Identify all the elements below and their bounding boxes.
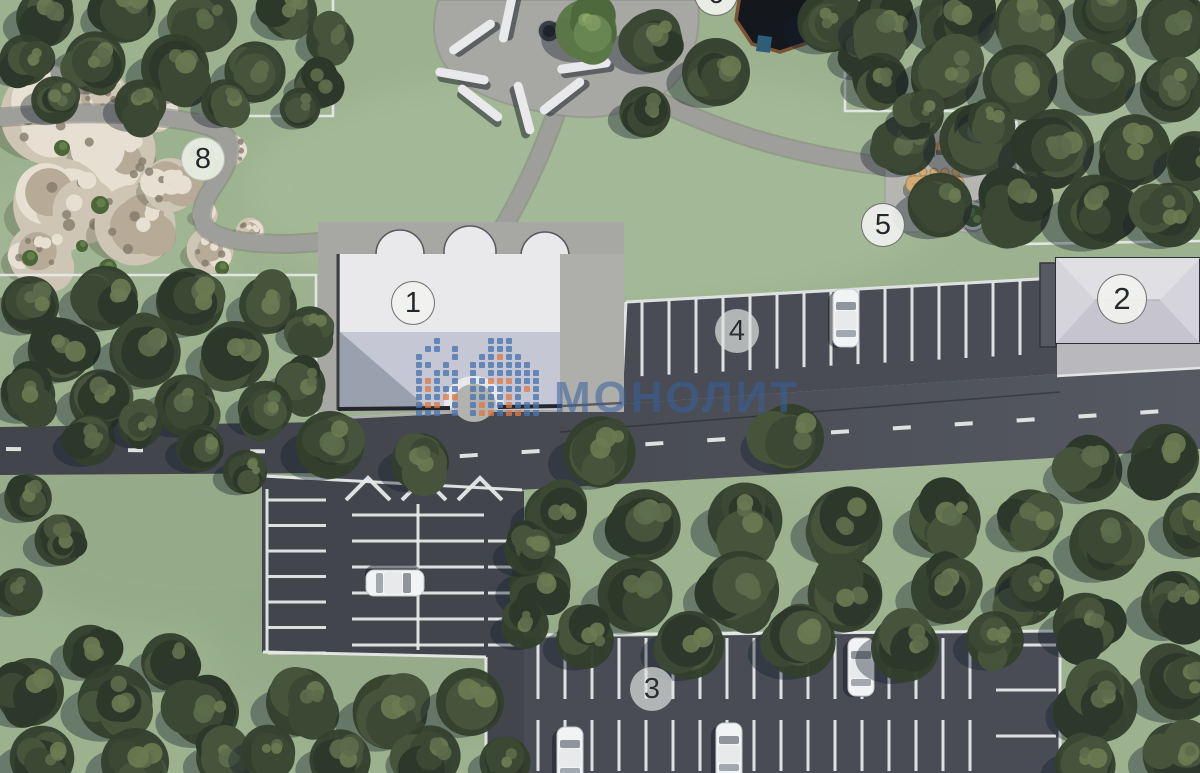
area-marker-5: 5 [861, 203, 905, 247]
area-marker-1-label: 1 [405, 287, 421, 320]
area-marker-5-label: 5 [875, 209, 891, 242]
car [711, 723, 742, 773]
site-plan-render: 6 8 1 2 4 5 3 МОНОЛИТ [0, 0, 1200, 773]
area-marker-3-label: 3 [644, 673, 660, 706]
car [828, 289, 859, 348]
area-marker-4-label: 4 [729, 315, 745, 348]
building-1 [318, 222, 624, 422]
car [552, 727, 583, 773]
area-marker-6-label: 6 [708, 0, 724, 11]
area-marker-8-label: 8 [195, 143, 211, 176]
area-marker-3: 3 [630, 667, 674, 711]
area-marker-2-label: 2 [1113, 281, 1130, 317]
site-plan-canvas [0, 0, 1200, 773]
area-marker-2: 2 [1097, 274, 1147, 324]
car [365, 565, 424, 596]
area-marker-8: 8 [181, 137, 225, 181]
area-marker-1: 1 [391, 281, 435, 325]
area-marker-4: 4 [715, 309, 759, 353]
